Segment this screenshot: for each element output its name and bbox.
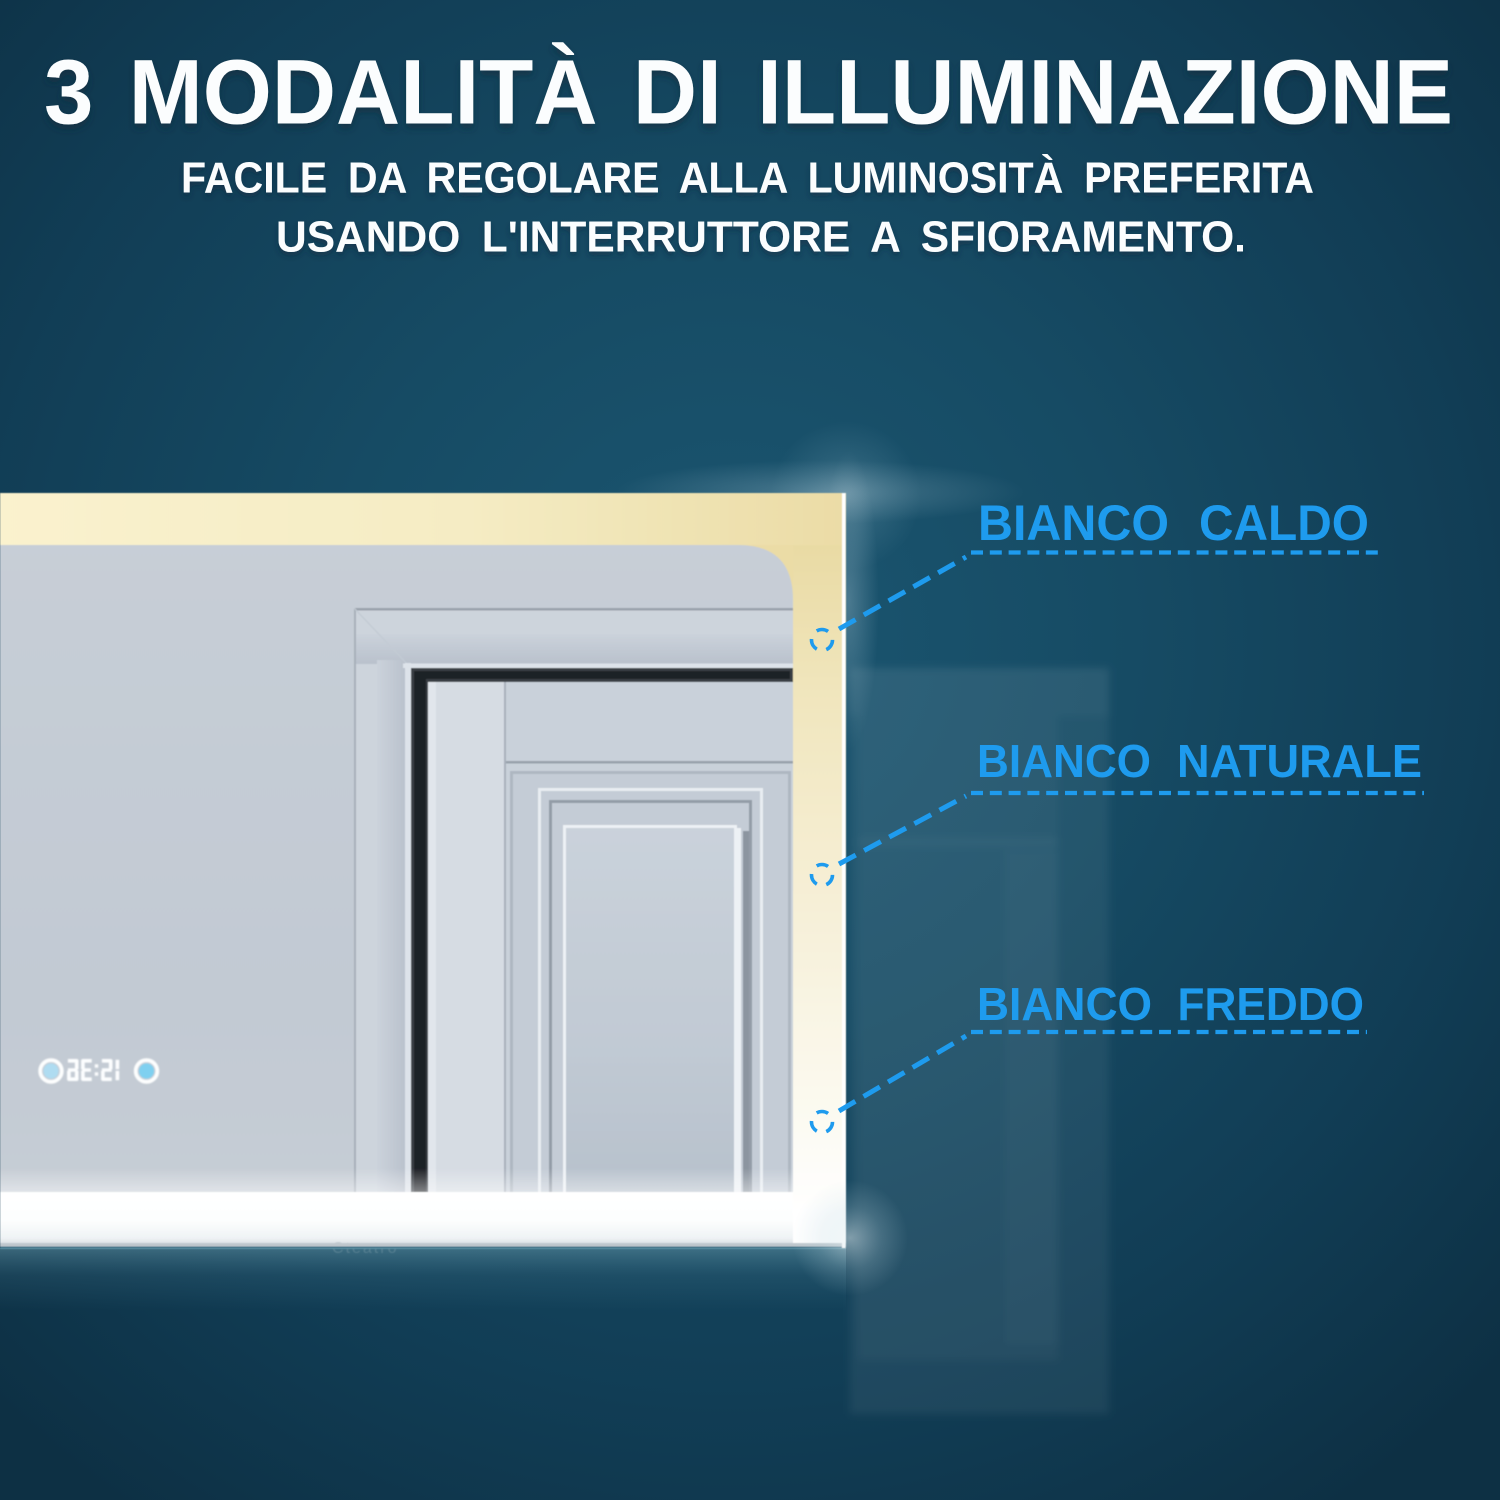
svg-text:CALDO: CALDO: [1199, 495, 1369, 551]
svg-text:3 MODALITÀ DI ILLUMINAZIONE: 3 MODALITÀ DI ILLUMINAZIONE: [44, 42, 1453, 144]
svg-text:FREDDO: FREDDO: [1178, 978, 1365, 1030]
svg-text:USANDO L'INTERRUTTORE A SFIORA: USANDO L'INTERRUTTORE A SFIORAMENTO.: [276, 213, 1246, 262]
svg-text:BIANCO: BIANCO: [978, 495, 1169, 551]
svg-text:NATURALE: NATURALE: [1177, 735, 1422, 787]
svg-text:BIANCO: BIANCO: [977, 978, 1152, 1030]
svg-text:FACILE DA REGOLARE ALLA LUMINO: FACILE DA REGOLARE ALLA LUMINOSITÀ PREFE…: [181, 153, 1314, 203]
svg-text:BIANCO: BIANCO: [977, 735, 1151, 787]
